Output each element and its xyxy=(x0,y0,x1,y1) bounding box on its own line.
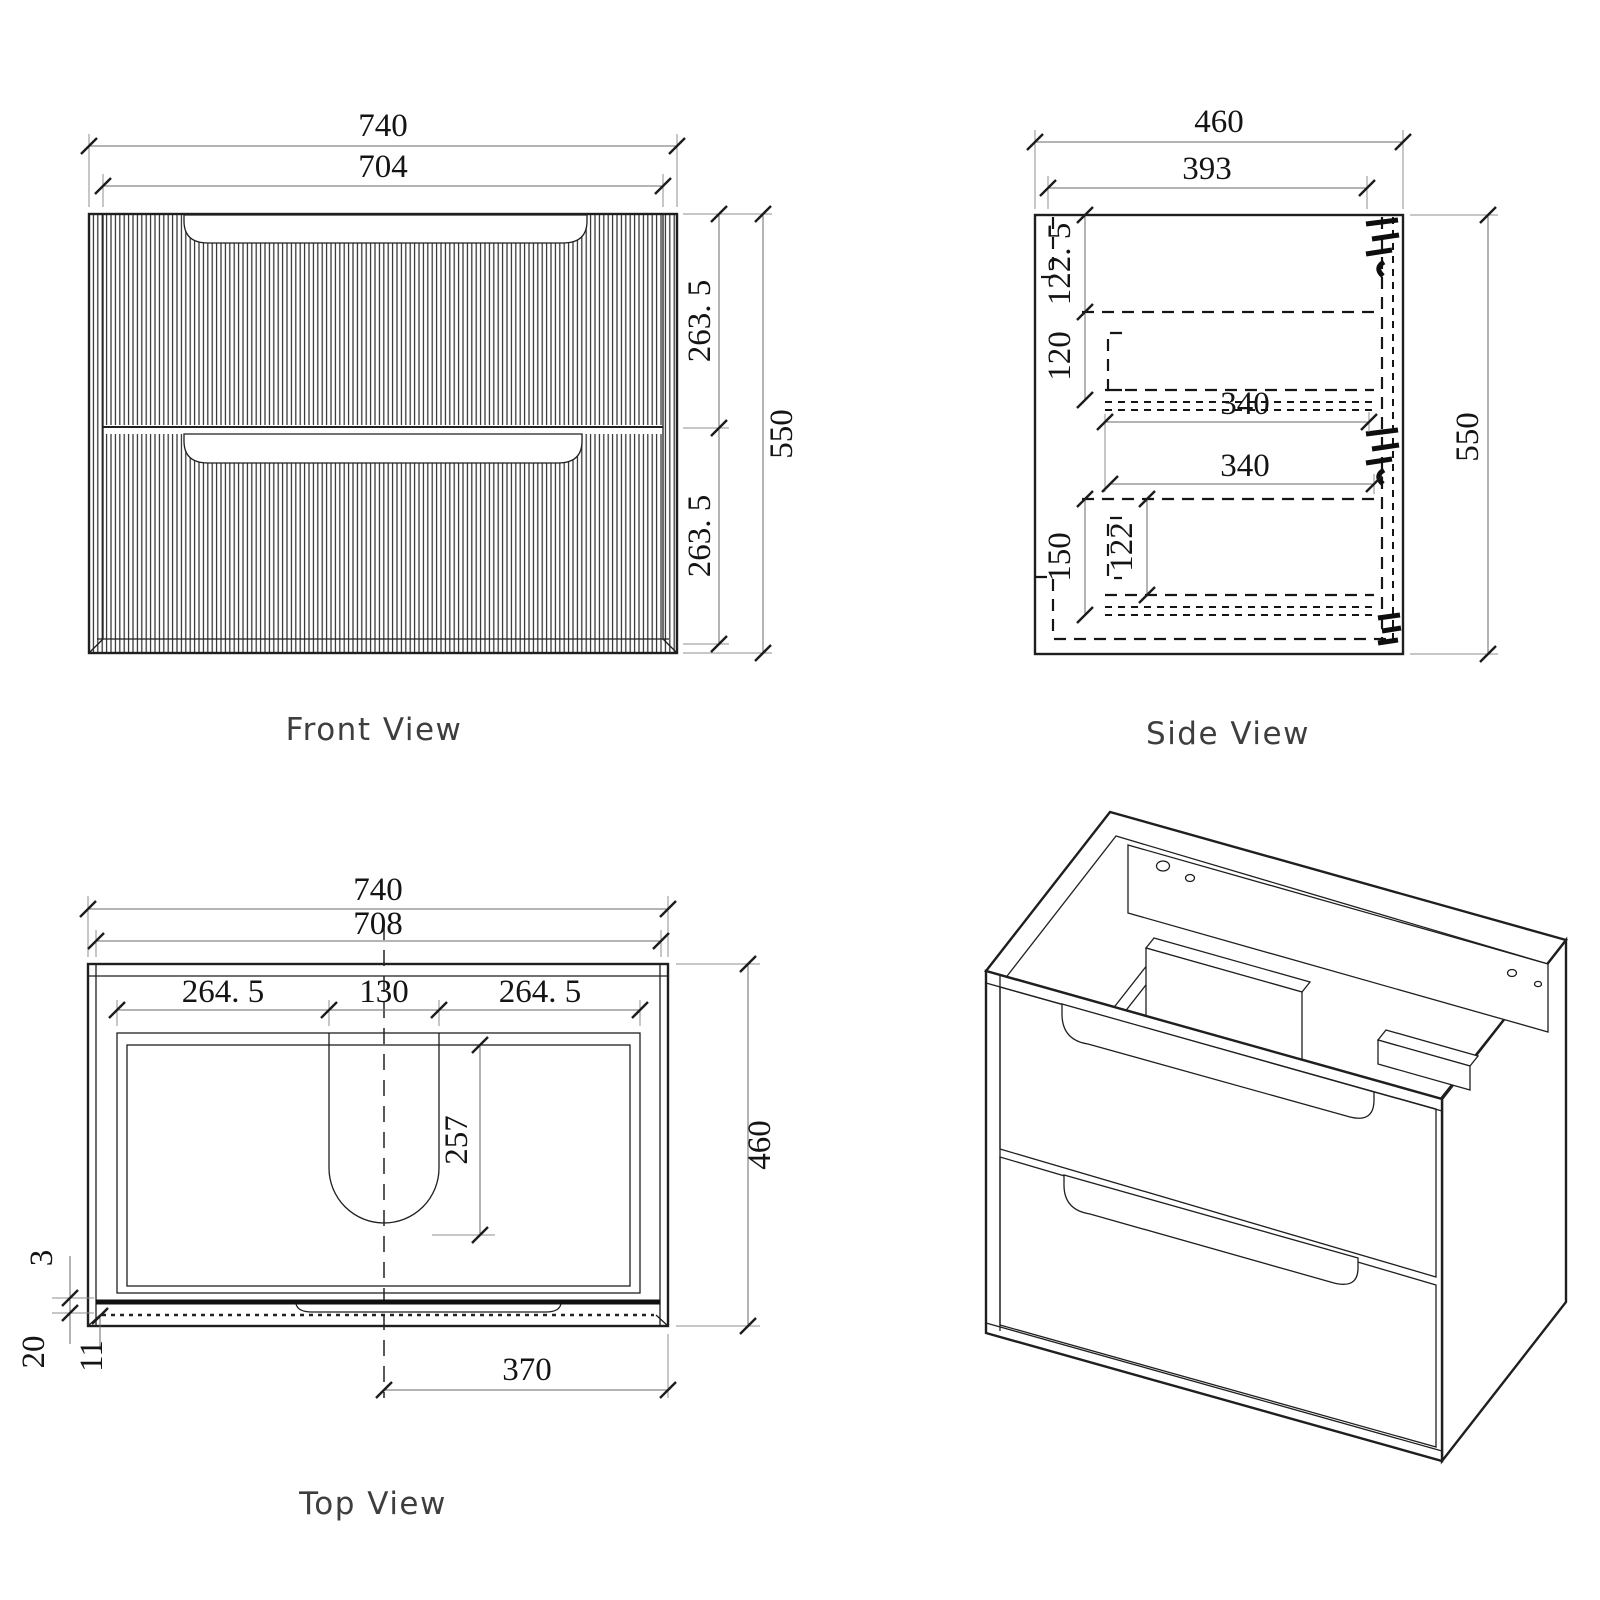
side-cabinet-outline xyxy=(1035,215,1403,654)
isometric-view xyxy=(986,812,1566,1461)
top-cutout-depth-dim: 257 xyxy=(439,1115,475,1165)
top-centre-to-side-dim: 370 xyxy=(502,1352,552,1388)
side-lower-runner-dim: 340 xyxy=(1220,448,1270,484)
vanity-cabinet-drawing: 740 704 263. 5 263. 5 550 Front View xyxy=(0,0,1600,1600)
side-internal-depth-dim: 393 xyxy=(1182,151,1232,187)
side-upper-runner-dim: 340 xyxy=(1220,386,1270,422)
side-overall-depth-dim: 460 xyxy=(1194,104,1244,140)
upper-drawer-handle-recess xyxy=(184,215,587,243)
side-view: 460 393 122. 5 120 340 340 150 xyxy=(1027,104,1498,752)
front-view: 740 704 263. 5 263. 5 550 Front View xyxy=(81,108,800,748)
front-overall-height-dim: 550 xyxy=(764,409,800,459)
top-overall-depth-dim: 460 xyxy=(742,1120,778,1170)
side-upper-drawer-side-dim: 120 xyxy=(1042,331,1078,381)
side-view-caption: Side View xyxy=(1146,716,1310,752)
top-internal-width-dim: 708 xyxy=(353,906,403,942)
front-opening-width-dim: 704 xyxy=(358,149,408,185)
top-right-offset-dim: 264. 5 xyxy=(499,974,582,1010)
top-gap-dim: 3 xyxy=(24,1250,60,1267)
top-overall-width-dim: 740 xyxy=(353,872,403,908)
technical-drawing-sheet: 740 704 263. 5 263. 5 550 Front View xyxy=(0,0,1600,1600)
side-top-clearance-dim: 122. 5 xyxy=(1042,223,1078,306)
top-view: 740 708 264. 5 130 264. 5 257 460 xyxy=(16,872,778,1522)
top-view-caption: Top View xyxy=(298,1486,447,1522)
side-lower-drawer-side-dim: 122 xyxy=(1104,522,1140,572)
front-overall-width-dim: 740 xyxy=(358,108,408,144)
top-left-offset-dim: 264. 5 xyxy=(182,974,265,1010)
top-cutout-width-dim: 130 xyxy=(359,974,409,1010)
front-view-caption: Front View xyxy=(286,712,463,748)
side-bottom-clearance-dim: 150 xyxy=(1042,532,1078,582)
lower-drawer-handle-recess xyxy=(184,434,582,463)
front-lower-drawer-height-dim: 263. 5 xyxy=(682,495,718,578)
side-overall-height-dim: 550 xyxy=(1450,412,1486,462)
front-upper-drawer-height-dim: 263. 5 xyxy=(682,280,718,363)
top-front-inset-dim: 11 xyxy=(74,1340,110,1372)
top-benchtop-outline xyxy=(88,964,668,1326)
top-front-rail-dim: 20 xyxy=(16,1336,52,1369)
